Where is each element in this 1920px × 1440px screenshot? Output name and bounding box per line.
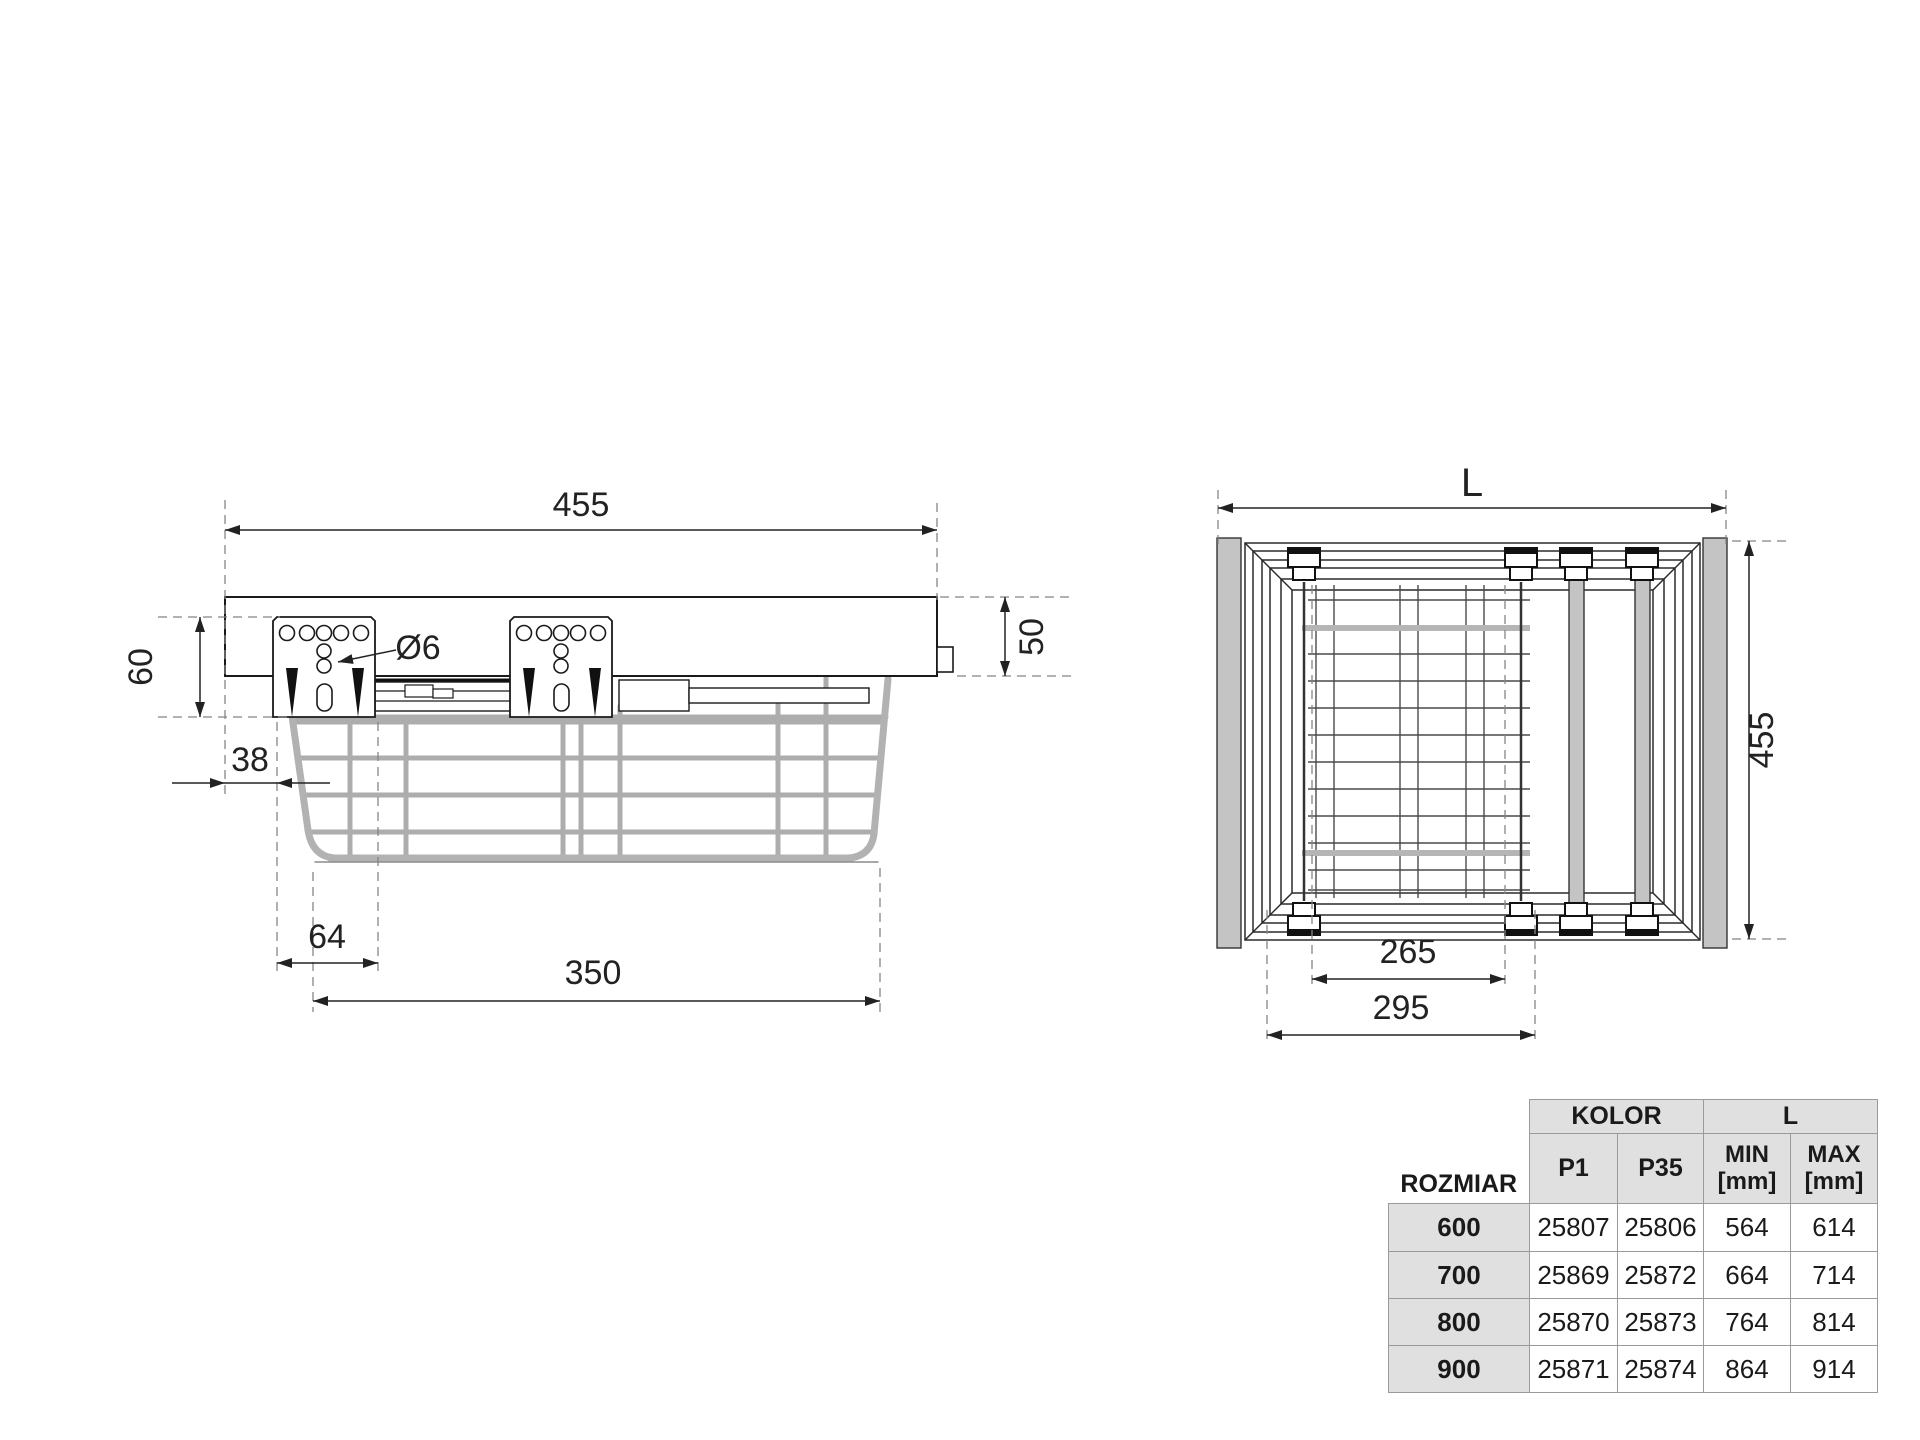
- dim-outer-width: 295: [1267, 989, 1535, 1035]
- dim-outer-width-label: 295: [1373, 989, 1430, 1027]
- cell-min: 864: [1704, 1346, 1791, 1393]
- slide-mechanism: [375, 680, 869, 711]
- table-row: 800 25870 25873 764 814: [1389, 1299, 1878, 1346]
- dim-basket-bottom-label: 350: [565, 954, 622, 992]
- table-row: 600 25807 25806 564 614: [1389, 1204, 1878, 1252]
- min-unit-label: [mm]: [1704, 1169, 1790, 1195]
- cell-max: 914: [1791, 1346, 1878, 1393]
- dim-inner-width-label: 265: [1380, 933, 1437, 971]
- top-view-drawing: L 455 265 295: [1217, 461, 1788, 1042]
- rail-end-tab: [937, 647, 953, 672]
- cell-size: 800: [1389, 1299, 1530, 1346]
- max-unit-label: [mm]: [1791, 1169, 1877, 1195]
- cell-p1: 25869: [1530, 1252, 1618, 1299]
- hanging-rail: [1569, 567, 1584, 903]
- dim-bracket-height: 60: [122, 617, 200, 717]
- cell-min: 664: [1704, 1252, 1791, 1299]
- dim-depth-label: 455: [1743, 712, 1781, 769]
- cell-min: 564: [1704, 1204, 1791, 1252]
- table-row: 700 25869 25872 664 714: [1389, 1252, 1878, 1299]
- cabinet-panel-left: [1217, 538, 1241, 948]
- table-header-p1: P1: [1530, 1134, 1618, 1204]
- table-header-kolor: KOLOR: [1530, 1100, 1704, 1134]
- dim-depth: 455: [1743, 541, 1781, 939]
- cell-max: 614: [1791, 1204, 1878, 1252]
- cell-p1: 25870: [1530, 1299, 1618, 1346]
- table-header-min: MIN [mm]: [1704, 1134, 1791, 1204]
- mounting-bracket-left: [273, 617, 375, 717]
- cell-size: 900: [1389, 1346, 1530, 1393]
- cell-p35: 25806: [1618, 1204, 1704, 1252]
- dim-basket-bottom: 350: [313, 954, 880, 1001]
- table-header-p35: P35: [1618, 1134, 1704, 1204]
- table-header-rozmiar: ROZMIAR: [1389, 1100, 1530, 1204]
- cell-max: 814: [1791, 1299, 1878, 1346]
- dim-front-offset-label: 38: [231, 741, 269, 779]
- cell-size: 600: [1389, 1204, 1530, 1252]
- dim-bracket-width: 64: [277, 918, 378, 963]
- table-header-l: L: [1704, 1100, 1878, 1134]
- dim-side-width: 455: [225, 486, 937, 530]
- mounting-clips: [1288, 548, 1658, 935]
- cell-p35: 25874: [1618, 1346, 1704, 1393]
- dim-hole-diameter-label: Ø6: [395, 629, 440, 667]
- dim-bracket-width-label: 64: [308, 918, 346, 956]
- cell-p35: 25873: [1618, 1299, 1704, 1346]
- hanging-rail: [1635, 567, 1650, 903]
- spec-table: ROZMIAR KOLOR L P1 P35 MIN [mm] MAX [mm]…: [1388, 1099, 1878, 1393]
- cell-size: 700: [1389, 1252, 1530, 1299]
- cell-p1: 25807: [1530, 1204, 1618, 1252]
- dim-length-label: L: [1461, 461, 1483, 505]
- dim-rail-height-label: 50: [1013, 618, 1051, 656]
- dim-length-L: L: [1218, 461, 1726, 508]
- dim-bracket-height-label: 60: [122, 648, 160, 686]
- table-row: 900 25871 25874 864 914: [1389, 1346, 1878, 1393]
- cabinet-panel-right: [1703, 538, 1727, 948]
- dim-side-width-label: 455: [553, 486, 610, 524]
- cell-max: 714: [1791, 1252, 1878, 1299]
- side-view-drawing: 455 50 60 Ø6 38 64: [122, 486, 1075, 1012]
- table-header-max: MAX [mm]: [1791, 1134, 1878, 1204]
- max-label: MAX: [1791, 1142, 1877, 1168]
- min-label: MIN: [1704, 1142, 1790, 1168]
- basket-plan-grid: [1302, 582, 1530, 901]
- cell-p35: 25872: [1618, 1252, 1704, 1299]
- cell-p1: 25871: [1530, 1346, 1618, 1393]
- dim-front-offset: 38: [172, 741, 330, 788]
- mounting-bracket-right: [510, 617, 612, 717]
- dim-rail-height: 50: [1005, 597, 1051, 676]
- technical-drawing-page: 455 50 60 Ø6 38 64: [0, 0, 1920, 1440]
- frame-profile: [1245, 543, 1700, 940]
- cell-min: 764: [1704, 1299, 1791, 1346]
- rozmiar-label: ROZMIAR: [1389, 1170, 1530, 1203]
